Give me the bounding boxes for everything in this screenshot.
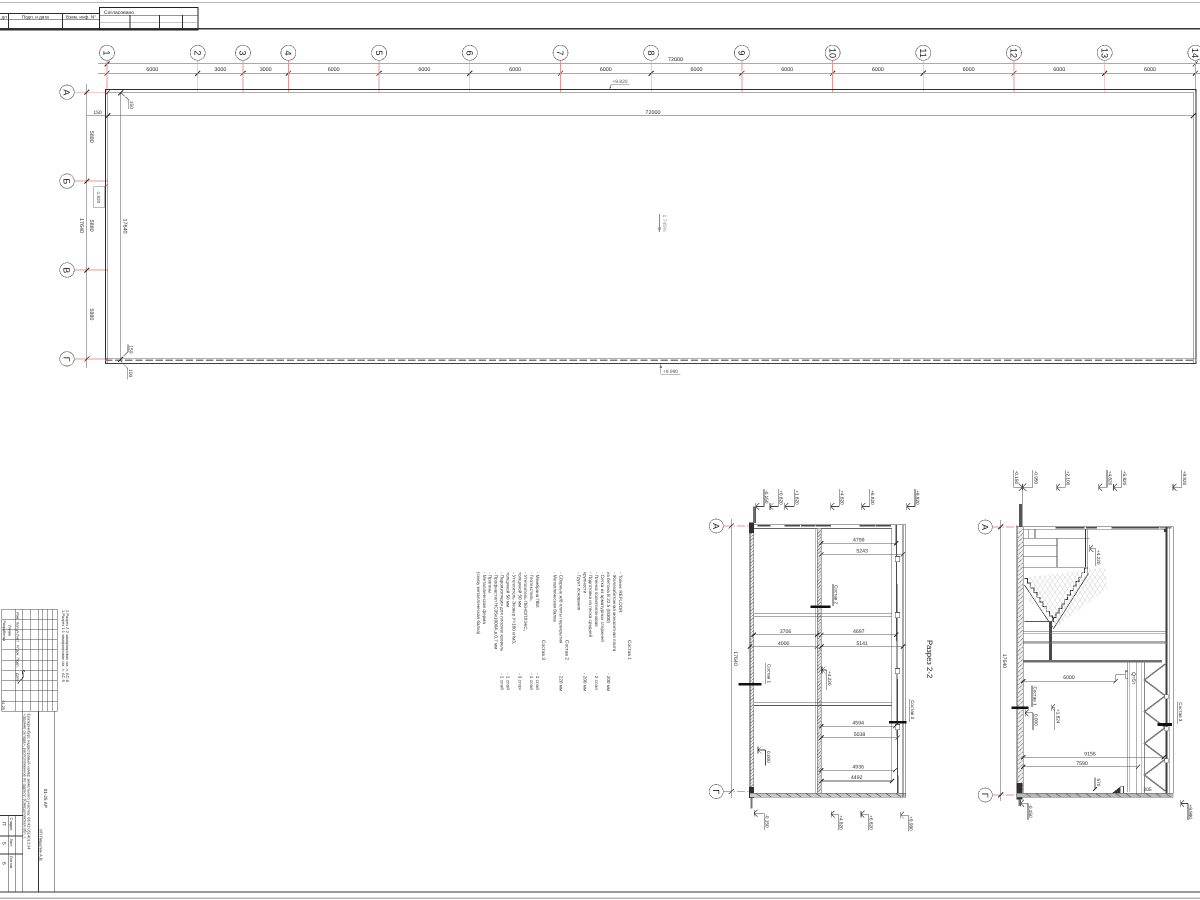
svg-text:Изм: Изм [16,612,20,619]
svg-text:Разрез 2-2: Разрез 2-2 [925,640,934,678]
svg-text:9156: 9156 [1084,752,1096,758]
svg-text:150: 150 [127,345,133,353]
svg-text:(снизу металлическая балка): (снизу металлическая балка) [476,572,481,635]
svg-text:01-25 АР: 01-25 АР [43,789,48,808]
svg-text:- Пароизоляция для плоских кро: - Пароизоляция для плоских кровель [500,572,505,652]
svg-text:- Грунт основания: - Грунт основания [576,572,581,611]
svg-text:6000: 6000 [872,67,884,73]
svg-text:+4.820: +4.820 [1107,471,1112,486]
svg-text:Состав 3: Состав 3 [540,640,546,660]
svg-text:- Утеплитель ПЕНОПЛЭКС,: - Утеплитель ПЕНОПЛЭКС, [523,572,528,631]
svg-text:Лялин: Лялин [8,625,12,636]
svg-text:10: 10 [827,48,837,58]
svg-text:Разработал: Разработал [2,621,6,642]
svg-text:7: 7 [555,50,565,55]
svg-text:+9.990: +9.990 [1188,805,1193,820]
svg-text:- 2 слоя: - 2 слоя [594,673,599,690]
svg-text:Дата: Дата [16,673,20,682]
svg-text:+4.820: +4.820 [839,490,844,505]
svg-text:-1.820: -1.820 [96,190,101,203]
svg-text:Г: Г [711,789,721,794]
svg-text:3: 3 [238,50,248,55]
svg-text:2: 2 [192,50,202,55]
svg-text:+1.824: +1.824 [1056,709,1061,724]
svg-text:150: 150 [128,101,134,109]
svg-text:205: 205 [1143,787,1151,793]
svg-text:толщиной 50 мм: толщиной 50 мм [505,572,510,607]
svg-text:17640: 17640 [732,651,738,666]
svg-text:А: А [980,524,990,530]
svg-text:5038: 5038 [854,732,866,738]
svg-text:Подп. и дата: Подп. и дата [22,14,50,19]
svg-text:4594: 4594 [852,720,864,726]
svg-text:- Подготовка из песка средней: - Подготовка из песка средней [588,572,593,638]
svg-text:- Металлическая балка: - Металлическая балка [553,572,558,622]
svg-text:14: 14 [1190,48,1200,58]
svg-text:100: 100 [127,369,133,377]
svg-text:+2.100: +2.100 [1066,471,1071,486]
svg-text:-0.150: -0.150 [1028,804,1033,818]
svg-text:6000: 6000 [328,67,340,73]
svg-text:1: 1 [102,50,112,55]
svg-text:Состав 1: Состав 1 [626,640,632,660]
svg-text:Состав 1: Состав 1 [1033,687,1038,706]
svg-text:+4.220: +4.220 [1096,550,1101,565]
svg-text:5243: 5243 [856,549,868,555]
svg-text:6000: 6000 [600,67,612,73]
svg-text:3706: 3706 [780,629,792,635]
svg-text:6: 6 [1,862,7,865]
svg-text:А: А [711,523,721,529]
svg-text:6000: 6000 [146,67,158,73]
svg-text:+5.820: +5.820 [1122,471,1127,486]
svg-text:570: 570 [1096,779,1101,787]
svg-text:+6.820: +6.820 [870,490,875,505]
svg-text:11: 11 [918,48,928,58]
svg-text:- Геотекстиль: - Геотекстиль [529,572,534,601]
svg-text:17640: 17640 [122,219,128,234]
svg-text:дл: дл [2,14,8,19]
svg-text:6000: 6000 [1053,67,1065,73]
svg-text:4492: 4492 [851,775,863,781]
svg-text:- Железобетонная монолитная пл: - Железобетонная монолитная плита [612,572,617,652]
svg-text:- Прогоны: - Прогоны [488,572,493,593]
svg-text:6000: 6000 [781,67,793,73]
svg-text:- Топинг REFLOOR: - Топинг REFLOOR [618,572,623,613]
svg-text:8: 8 [646,50,656,55]
svg-text:Екатеринбург, кадастровый номе: Екатеринбург, кадастровый номер земельно… [27,714,32,851]
svg-text:5880: 5880 [88,308,94,320]
svg-text:А: А [62,89,72,95]
svg-text:3000: 3000 [260,67,272,73]
svg-text:13: 13 [1099,48,1109,58]
svg-text:9: 9 [737,50,747,55]
svg-text:-0.150: -0.150 [764,490,769,504]
svg-text:7590: 7590 [1076,761,1088,767]
svg-text:+4.220: +4.220 [827,671,832,686]
svg-text:72000: 72000 [646,110,661,116]
svg-text:6000: 6000 [1144,67,1156,73]
svg-text:+9.820: +9.820 [915,490,920,505]
svg-text:- Мембрана ПВХ: - Мембрана ПВХ [535,572,540,608]
svg-text:В: В [62,267,72,273]
svg-text:Состав 1: Состав 1 [766,664,771,683]
svg-text:17640: 17640 [78,218,84,233]
svg-text:12: 12 [1009,48,1019,58]
svg-text:- Сетка из арматурных стержней: - Сетка из арматурных стержней [600,572,605,642]
svg-text:Стадия: Стадия [9,818,13,831]
svg-text:3000: 3000 [214,67,226,73]
svg-text:- 1 слой: - 1 слой [529,673,534,690]
svg-text:17640: 17640 [1001,654,1007,669]
svg-text:Состав 2: Состав 2 [834,585,839,604]
svg-text:крупности: крупности [582,572,587,594]
svg-text:4697: 4697 [853,629,865,635]
svg-text:П: П [1,822,7,826]
svg-text:- 220 мм: - 220 мм [559,673,564,691]
svg-text:Листов: Листов [9,856,13,868]
svg-text:5: 5 [1,842,7,845]
svg-text:Кол.уч: Кол.уч [16,622,20,633]
svg-text:Г: Г [980,793,990,798]
svg-text:6000: 6000 [963,67,975,73]
svg-text:ИП Пищулин А.В.: ИП Пищулин А.В. [39,829,44,862]
svg-text:+6.820: +6.820 [868,815,873,830]
svg-text:+0.820: +0.820 [779,490,784,505]
svg-text:Б: Б [62,178,72,184]
svg-text:6000: 6000 [509,67,521,73]
svg-text:- Металлическая ферма: - Металлическая ферма [482,572,487,624]
svg-text:+1.820: +1.820 [794,490,799,505]
svg-text:2.Разрез 2-2 замаркирован см.: 2.Разрез 2-2 замаркирован см. л. АС-8 [65,610,70,683]
svg-text:6000: 6000 [418,67,430,73]
svg-text:6: 6 [465,50,475,55]
svg-text:Г: Г [62,357,72,362]
svg-text:-0.950: -0.950 [1034,471,1039,485]
svg-text:-0.150: -0.150 [1014,471,1019,485]
svg-text:Состав 3: Состав 3 [910,700,915,719]
svg-text:+9.990: +9.990 [663,369,678,375]
svg-text:Лист: Лист [16,634,20,643]
svg-text:0.000: 0.000 [766,751,771,763]
svg-text:- 200 мм: - 200 мм [606,673,611,691]
svg-text:6000: 6000 [691,67,703,73]
svg-text:Взам. инф. N°: Взам. инф. N° [66,14,96,19]
svg-text:5880: 5880 [88,131,94,143]
svg-text:4936: 4936 [852,764,864,770]
svg-text:Q=5т: Q=5т [1130,672,1136,685]
svg-text:0.000: 0.000 [1034,714,1039,726]
svg-text:N°док: N°док [16,645,20,656]
svg-text:- Утеплитель Эковер У=160 кг/м: - Утеплитель Эковер У=160 кг/м3, [511,572,516,644]
svg-text:6000: 6000 [1063,675,1075,681]
svg-text:- 1 слой: - 1 слой [500,673,505,690]
svg-text:72000: 72000 [668,57,683,63]
svg-text:5: 5 [374,50,384,55]
svg-text:+9.990: +9.990 [908,816,913,831]
svg-text:Лист: Лист [9,839,13,848]
svg-text:4000: 4000 [778,641,790,647]
svg-text:150: 150 [93,110,102,116]
svg-text:+4.820: +4.820 [839,815,844,830]
svg-text:+9.820: +9.820 [612,79,627,85]
svg-text:из бетона В 22.5 (М300): из бетона В 22.5 (М300) [606,572,611,623]
svg-text:Подп.: Подп. [16,658,20,668]
svg-text:Состав 3: Состав 3 [1178,702,1183,721]
svg-text:- 1 слой: - 1 слой [505,673,510,690]
svg-text:толщиной 50 мм: толщиной 50 мм [517,572,522,607]
svg-text:- Профнастил НС35х1000А,в.0,7: - Профнастил НС35х1000А,в.0,7 мм [494,572,499,649]
svg-text:-0.150: -0.150 [764,814,769,828]
svg-text:- Сборные ж/б плиты перекрытия: - Сборные ж/б плиты перекрытия [559,572,564,644]
svg-text:01.25: 01.25 [1,701,5,711]
svg-text:- 1 слой: - 1 слой [535,673,540,690]
svg-text:- Пленка полиэтиленовая: - Пленка полиэтиленовая [594,572,599,627]
svg-text:4: 4 [283,50,293,55]
svg-text:- 3 слоя: - 3 слоя [517,673,522,690]
svg-text:5141: 5141 [856,641,868,647]
svg-text:4799: 4799 [853,537,865,543]
svg-text:5880: 5880 [88,220,94,232]
svg-text:- 200 мм: - 200 мм [582,673,587,691]
svg-text:+9.820: +9.820 [1182,471,1187,486]
svg-text:1.745%: 1.745% [661,215,667,233]
